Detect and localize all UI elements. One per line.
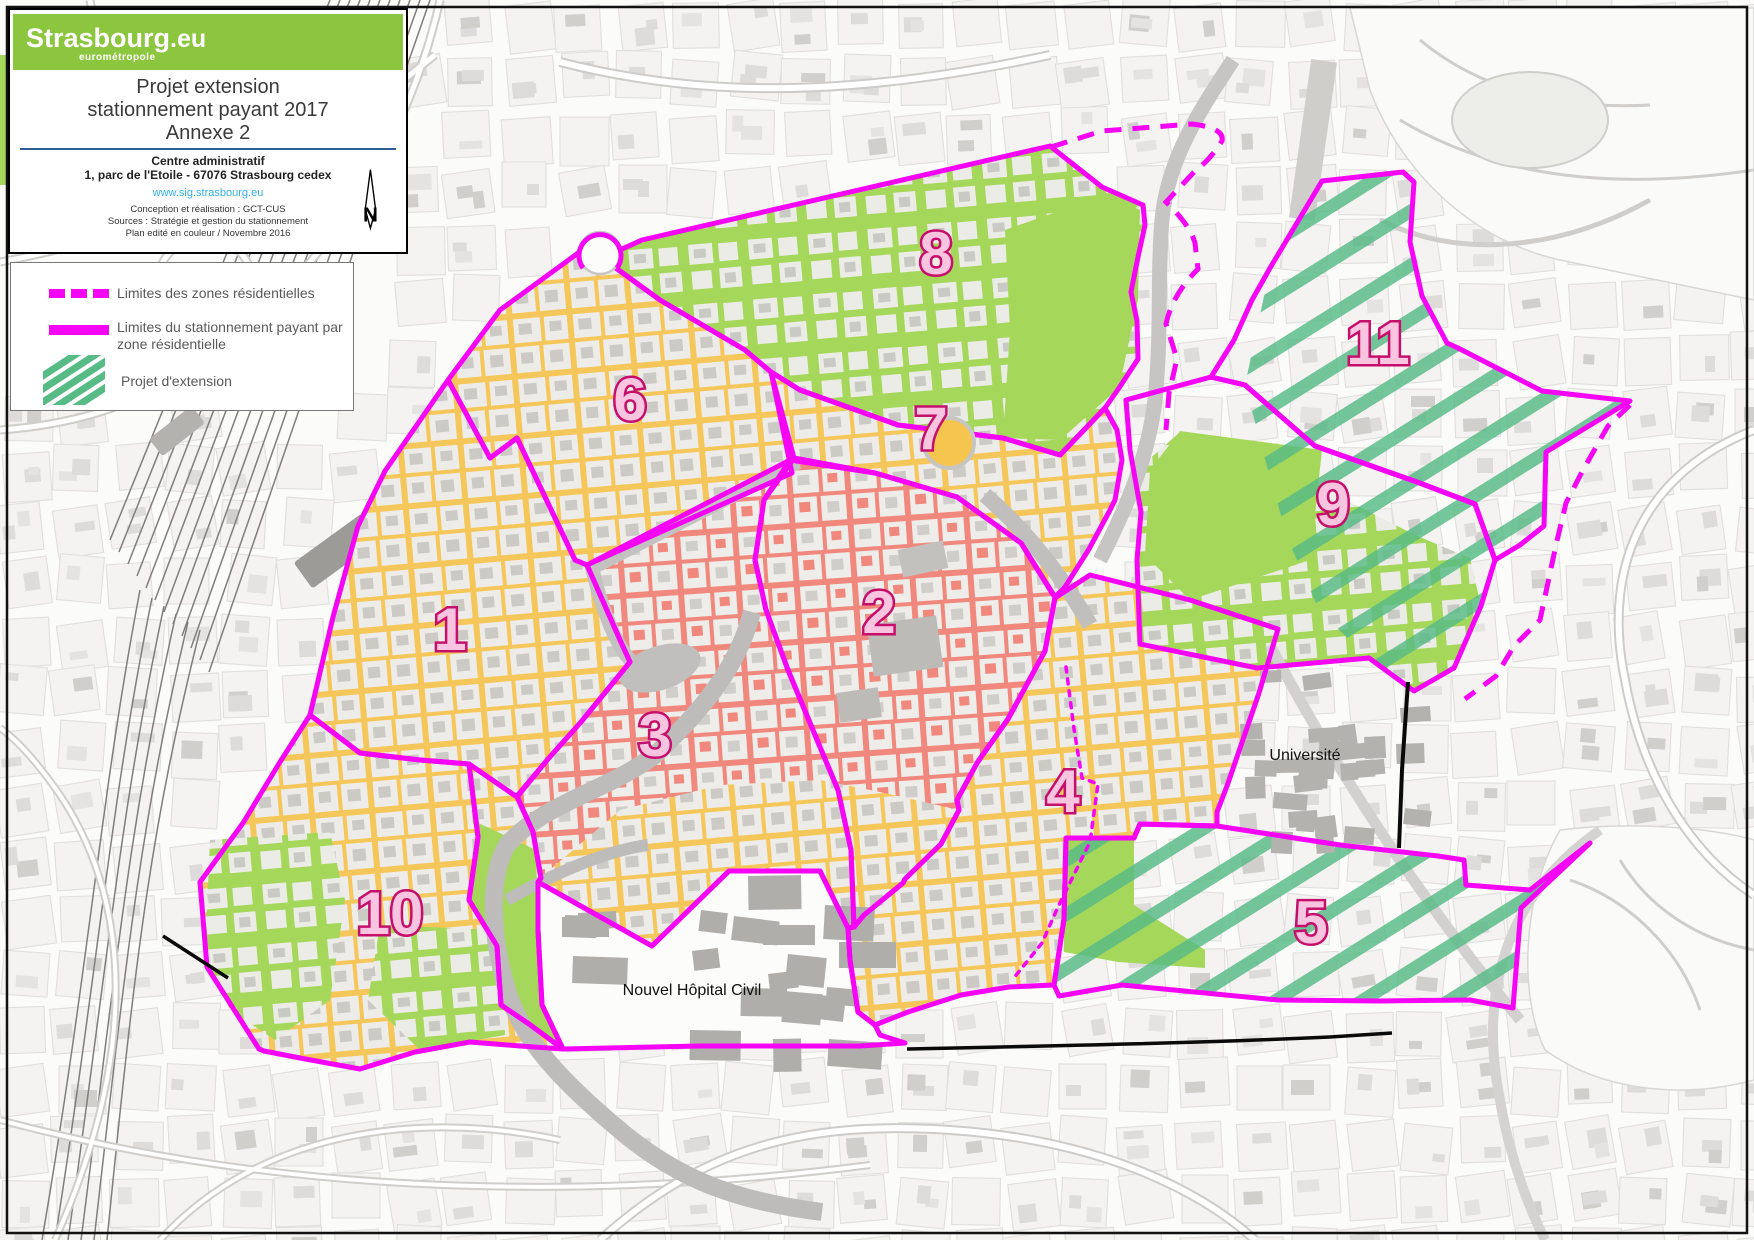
svg-text:Nouvel Hôpital Civil: Nouvel Hôpital Civil — [623, 982, 762, 999]
svg-text:4: 4 — [1046, 758, 1080, 825]
svg-text:9: 9 — [1316, 471, 1349, 538]
svg-text:2: 2 — [862, 579, 895, 646]
svg-text:Université: Université — [1269, 747, 1340, 764]
svg-text:1: 1 — [433, 596, 466, 663]
svg-text:10: 10 — [357, 880, 424, 947]
svg-text:7: 7 — [914, 395, 947, 462]
svg-text:6: 6 — [613, 366, 646, 433]
svg-text:5: 5 — [1294, 889, 1327, 956]
svg-text:N: N — [363, 203, 378, 226]
svg-text:3: 3 — [638, 702, 671, 769]
svg-text:11: 11 — [1346, 310, 1409, 377]
svg-text:8: 8 — [919, 220, 952, 287]
